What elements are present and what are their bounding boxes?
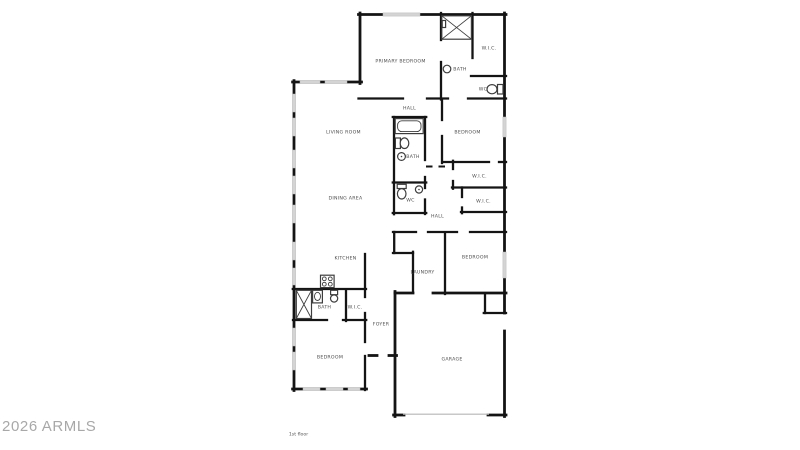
floor-plan-svg: PRIMARY BEDROOM W.I.C. BATH WC HALL LIVI… bbox=[0, 0, 800, 450]
room-labels: PRIMARY BEDROOM W.I.C. BATH WC HALL LIVI… bbox=[317, 46, 496, 363]
room-label-bedroom-3: BEDROOM bbox=[462, 255, 488, 261]
sink-icon bbox=[443, 65, 451, 73]
room-label-laundry: LAUNDRY bbox=[410, 270, 434, 276]
interior-walls bbox=[293, 13, 506, 390]
room-label-wic-primary: W.I.C. bbox=[482, 46, 497, 52]
room-label-foyer: FOYER bbox=[373, 322, 390, 328]
room-label-primary-bedroom: PRIMARY BEDROOM bbox=[375, 59, 425, 65]
toilet-icon bbox=[331, 290, 338, 302]
floor-label: 1st floor bbox=[289, 432, 308, 438]
room-label-bath-2: BATH bbox=[406, 154, 420, 160]
room-label-dining-area: DINING AREA bbox=[329, 196, 363, 202]
shower-icon bbox=[296, 290, 311, 318]
toilet-icon bbox=[397, 184, 406, 199]
sink-icon bbox=[415, 186, 422, 193]
shower-icon bbox=[442, 16, 472, 39]
room-label-wic-3: W.I.C. bbox=[476, 199, 491, 205]
room-label-wic-4: W.I.C. bbox=[348, 305, 363, 311]
room-label-wc-2: WC bbox=[406, 198, 415, 204]
room-label-living-room: LIVING ROOM bbox=[326, 130, 361, 136]
room-label-bedroom-4: BEDROOM bbox=[317, 355, 343, 361]
room-label-wc-primary: WC bbox=[479, 87, 488, 93]
watermark: 2026 ARMLS bbox=[2, 418, 96, 435]
room-label-kitchen: KITCHEN bbox=[334, 256, 356, 262]
room-label-bath-3: BATH bbox=[318, 305, 332, 311]
room-label-bath-primary: BATH bbox=[453, 67, 467, 73]
room-label-garage: GARAGE bbox=[441, 357, 462, 363]
toilet-icon bbox=[395, 138, 408, 149]
toilet-icon bbox=[487, 85, 503, 95]
room-label-bedroom-2: BEDROOM bbox=[454, 130, 480, 136]
room-label-hall-lower: HALL bbox=[431, 214, 444, 220]
room-label-hall-upper: HALL bbox=[403, 106, 416, 112]
bathtub-icon bbox=[395, 119, 423, 134]
floor-plan-page: PRIMARY BEDROOM W.I.C. BATH WC HALL LIVI… bbox=[0, 0, 800, 450]
sink-icon bbox=[398, 153, 406, 161]
sink-icon bbox=[313, 290, 323, 303]
room-label-wic-2: W.I.C. bbox=[472, 174, 487, 180]
stove-icon bbox=[321, 275, 335, 287]
